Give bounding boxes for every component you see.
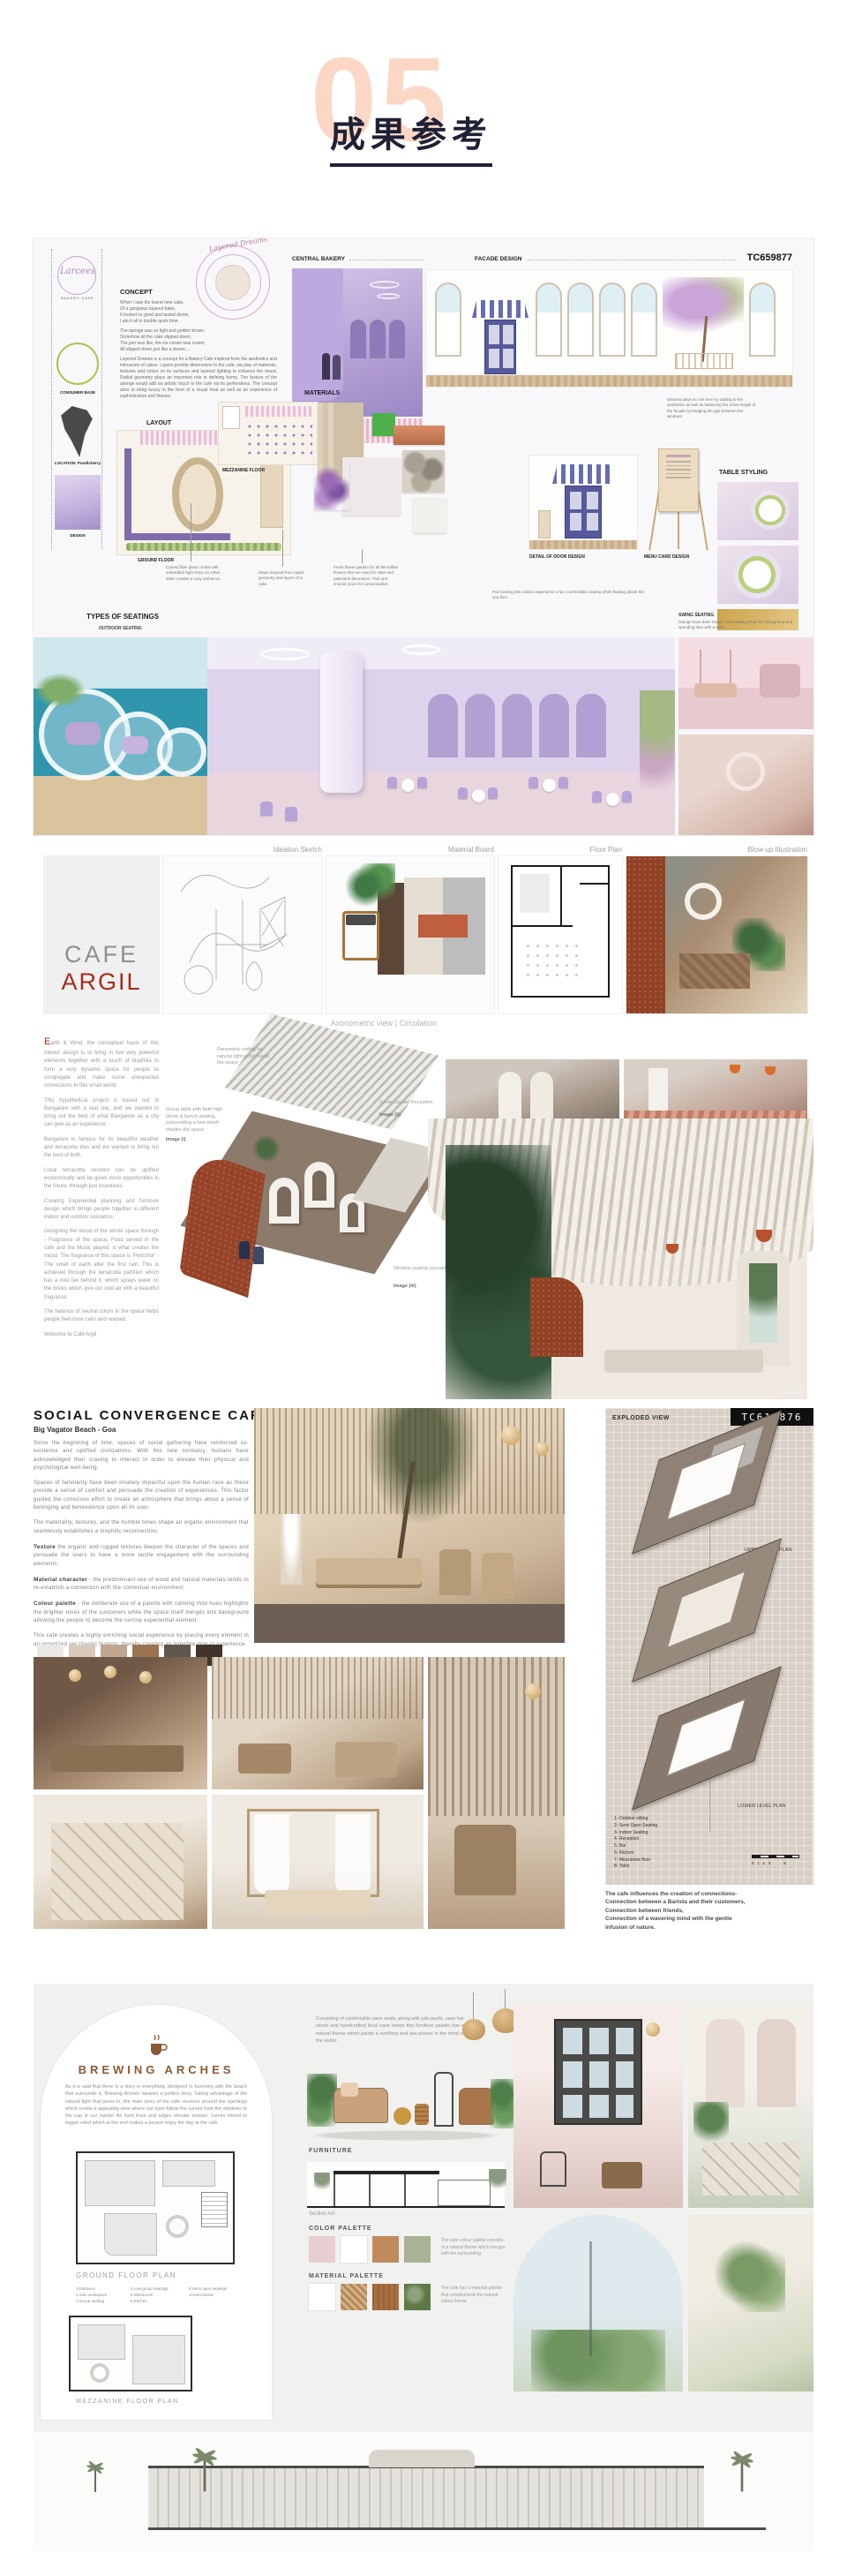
b3-paragraph: Since the beginning of time, spaces of s… (34, 1440, 249, 1473)
legend-item: 1.Entrance (76, 2286, 125, 2292)
argil-paragraph: Creating Experiential planning and furni… (44, 1198, 159, 1223)
legend-item: 7- Mezzanine floor (614, 1857, 657, 1864)
panel-label-floor-plan: Floor Plan (534, 846, 622, 854)
b3-photo-canopy (212, 1795, 423, 1929)
parametric-ceiling-annotation: Parametric ceiling for natural light to … (217, 1047, 274, 1067)
lamp-cord (505, 1989, 506, 2008)
types-of-seatings-heading: TYPES OF SEATINGS (86, 613, 159, 621)
material-lead: Material character (34, 1577, 87, 1583)
material-swatch (372, 2284, 399, 2310)
table-styling-heading: TABLE STYLING (719, 470, 768, 476)
fiber-glass-annotation: Carved fiber glass circles with embedded… (166, 565, 222, 582)
mezzanine-plan-drawing (69, 2316, 192, 2391)
color-swatch (372, 2236, 399, 2263)
plan-legend-col2: 4.Low group seatings 5.Washroom 6.Kitche… (131, 2286, 184, 2305)
color-palette-label: COLOR PALETTE (309, 2226, 372, 2232)
divider (528, 260, 736, 260)
blowup-illustration-panel (626, 856, 807, 1013)
elevation-watercolor (34, 2432, 813, 2551)
interior-seating-render (207, 637, 675, 835)
legend-item: 6.Kitchen (131, 2298, 184, 2304)
furniture-vignette (307, 2065, 505, 2141)
consumer-base-label: CONSUMER BASE (47, 390, 109, 395)
mezzanine-floor-plan (219, 403, 318, 464)
materials-heading: MATERIALS (304, 390, 340, 396)
steps-annotation: Steps inspired from radial geometry and … (259, 570, 311, 587)
swing-seating-render (678, 637, 813, 729)
menu-easel-illustration (648, 440, 709, 553)
brewing-intro: As it is said that there is a story in e… (65, 2083, 247, 2128)
panel-label-material-board: Material Board (406, 846, 494, 854)
legend-item: 6- Kitchen (614, 1850, 657, 1857)
argil-paragraph: The balance of neutral colors in the spa… (44, 1308, 159, 1325)
exploded-view-panel: EXPLODED VIEW TC619876 UPPER LEVEL PLAN … (605, 1408, 813, 1885)
b3-paragraph: The materiality, textures, and the humbl… (34, 1519, 249, 1536)
ground-floor-label: GROUND FLOOR (138, 558, 174, 563)
board-social-convergence-cafe: SOCIAL CONVERGENCE CAFE Big Vagator Beac… (34, 1408, 813, 1938)
b3-subtitle: Big Vagator Beach - Goa (34, 1426, 116, 1434)
location-label: LOCATION: Pondicherry (45, 461, 110, 465)
bakery-logo-name: Larcees (54, 267, 101, 276)
legend-item: 5- Bar (614, 1843, 657, 1850)
cafe-title-line1: CAFE (44, 941, 159, 968)
b3-title: SOCIAL CONVERGENCE CAFE (34, 1408, 271, 1423)
page-title: 成果参考 (330, 106, 492, 167)
color-palette-text: The cafe colour palette consists of a na… (441, 2238, 506, 2258)
central-bakery-heading: CENTRAL BAKERY (292, 256, 345, 262)
legend-item: 2- Semi Open Seating (614, 1823, 657, 1830)
legend-item: 3- Indoor Seating (614, 1830, 657, 1837)
board-cafe-argil: Ideation Sketch Material Board Floor Pla… (34, 846, 813, 1402)
brewing-arches-title: BREWING ARCHES (41, 2063, 272, 2076)
exploded-legend: 1- Outdoor sitting 2- Semi Open Seating … (614, 1816, 657, 1871)
b4-arch-window-scene (513, 2215, 683, 2391)
swing-annotation: Swings have been hung in two seating are… (678, 620, 809, 631)
group-table-annotation: Group table with both high stools & benc… (166, 1107, 229, 1134)
argil-paragraph: This hypothetical project is based out i… (44, 1097, 159, 1130)
argil-paragraph: Bangalore is famous for its beautiful we… (44, 1136, 159, 1161)
project-code: TC659877 (747, 252, 792, 263)
legend-item: 2.Solo workspace (76, 2292, 125, 2298)
legend-item: 4.Low group seatings (131, 2286, 184, 2292)
layout-heading: LAYOUT (146, 420, 171, 426)
b3-photo-interior (212, 1657, 423, 1789)
table-styling-photo (717, 482, 798, 540)
b3-photo-bar (34, 1657, 207, 1789)
b4-watercolor-interior (513, 2005, 683, 2208)
material-swatch (341, 2284, 367, 2310)
swing-seating-label: SWING SEATING (678, 613, 714, 618)
facade-design-heading: FACADE DESIGN (475, 256, 521, 262)
plan-legend-col1: 1.Entrance 2.Solo workspace 3.Group seat… (76, 2286, 125, 2305)
plan-legend-col3: 9.Semi open seatings 10.Mezzanine (189, 2286, 245, 2298)
b3-texture-paragraph: Texture the organic and rugged textures … (34, 1543, 249, 1569)
section-label: Section AA' (309, 2211, 336, 2217)
color-swatch (309, 2236, 335, 2263)
cane-lamp-icon (462, 2019, 485, 2040)
cafe-title-line2: ARGIL (44, 968, 159, 996)
argil-welcome-line: Welcome to Cafe Argil (44, 1331, 159, 1339)
texture-text: the organic and rugged textures deepen t… (34, 1545, 249, 1567)
concept-poem-2: The sponge was so light and golden brown… (120, 328, 261, 353)
furniture-paragraph: Consisting of comfortable cane seats, al… (316, 2015, 464, 2045)
location-map (59, 406, 96, 457)
exploded-view-label: EXPLODED VIEW (612, 1415, 670, 1421)
argil-paragraph: Designing the mood of the whole space th… (44, 1228, 159, 1302)
image-i-ref: Image (i) (166, 1137, 186, 1142)
coffee-cup-icon (144, 2033, 169, 2056)
argil-paragraph: Earth & Wind, the conceptual basis of th… (44, 1035, 159, 1091)
legend-item: 9.Semi open seatings (189, 2286, 245, 2292)
leader-line (191, 503, 191, 561)
legend-item: 10.Mezzanine (189, 2292, 245, 2298)
b3-hero-render (254, 1408, 565, 1643)
wisteria-tree (663, 277, 744, 376)
color-swatch (341, 2236, 367, 2263)
colour-lead: Colour palette (34, 1601, 76, 1607)
upper-level-slab (632, 1410, 782, 1555)
material-palette-text: The cafe has a material palette that com… (441, 2286, 506, 2306)
b3-photo-slat-wall (428, 1657, 565, 1929)
image-ii-ref: Image (ii) (379, 1112, 401, 1118)
render-image-iii: Image (iii) (446, 1145, 807, 1399)
bakery-logo-subtitle: BAKERY CAFE (52, 297, 103, 300)
b4-material-swatches (309, 2284, 436, 2315)
b4-watercolor-stairs (688, 2005, 813, 2208)
brand-column: Larcees BAKERY CAFE CONSUMER BASE LOCATI… (51, 249, 102, 549)
menu-card-label: MENU CARD DESIGN (644, 554, 689, 560)
material-palette-label: MATERIAL PALETTE (309, 2273, 384, 2279)
concept-poem-1: When I saw the brand new cake, Of a gorg… (120, 300, 261, 325)
mid-level-slab (632, 1538, 782, 1683)
consumer-base-diagram (56, 343, 99, 385)
scale-numbers: 0 1 2 3 5 (752, 1861, 805, 1865)
window-seating-annotation: Window seating concept (394, 1266, 446, 1273)
sketch-drawing (163, 856, 322, 1013)
b3-text-column: Since the beginning of time, spaces of s… (34, 1440, 249, 1656)
floor-plan-panel (498, 856, 622, 1013)
ideation-sketch-panel (163, 856, 322, 1013)
color-swatch (404, 2236, 431, 2263)
connections-text: The cafe influences the creation of conn… (605, 1890, 813, 1932)
wisteria-annotation: Wisteria plays its role here by adding t… (667, 397, 759, 419)
concept-paragraph: Layered Dreams is a concept for a Bakery… (120, 357, 277, 400)
flower-garden-annotation: Fresh flower garden for all the edible f… (334, 565, 399, 587)
image-label: Image (iii) (780, 1390, 803, 1396)
brewing-arches-panel: BREWING ARCHES As it is said that there … (41, 2005, 272, 2420)
panel-label-blowup: Blow-up Illustration (701, 846, 807, 854)
material-swatch (404, 2284, 431, 2310)
door-detail-label: DETAIL OF DOOR DESIGN (529, 554, 585, 560)
board-brewing-arches: BREWING ARCHES As it is said that there … (34, 1984, 813, 2551)
legend-item: 5.Washroom (131, 2292, 184, 2298)
legend-item: 4- Reception (614, 1836, 657, 1843)
door-detail-illustration (529, 456, 637, 549)
b4-color-swatches (309, 2236, 436, 2267)
legend-item: 1- Outdoor sitting (614, 1816, 657, 1823)
leader-line (362, 549, 363, 563)
material-swatch (309, 2284, 335, 2310)
lower-level-label: LOWER LEVEL PLAN (738, 1804, 786, 1809)
b3-colour-paragraph: Colour palette - the deliberate use of a… (34, 1600, 249, 1625)
cafe-argil-title-panel: CAFE ARGIL (44, 856, 159, 1013)
concept-heading: CONCEPT (120, 288, 153, 296)
ground-floor-plan-label: GROUND FLOOR PLAN (76, 2271, 176, 2279)
furniture-label: FURNITURE (309, 2148, 352, 2154)
section-drawing (307, 2162, 505, 2208)
interior-detail-photo (678, 734, 813, 835)
divider (349, 260, 423, 260)
b4-watercolor-greenery (688, 2215, 813, 2391)
table-styling-photo (717, 546, 798, 604)
facade-illustration (426, 270, 792, 387)
design-label: DESIGN (55, 533, 101, 538)
b3-material-paragraph: Material character - the predominant use… (34, 1576, 249, 1593)
panel-label-ideation-sketch: Ideation Sketch (234, 846, 322, 854)
outdoor-bubble-seating-render (34, 637, 207, 835)
mezzanine-floor-label: MEZZANINE FLOOR (222, 468, 265, 473)
lower-level-slab (632, 1666, 782, 1811)
argil-text-column: Earth & Wind, the conceptual basis of th… (44, 1035, 159, 1345)
texture-lead: Texture (34, 1544, 56, 1550)
serve-counter-annotation: Serve counter Reception (379, 1100, 438, 1107)
material-board-panel (326, 856, 494, 1013)
argil-paragraph: Local terracotta vendors can be uplifted… (44, 1167, 159, 1192)
b3-photo-stairs (34, 1795, 207, 1929)
legend-item: 8- Toilet (614, 1864, 657, 1871)
design-thumbnail (55, 475, 101, 530)
image-iii-ref: Image (iii) (394, 1284, 416, 1289)
outdoor-annotation: Pod seating lets visitors experience a f… (492, 590, 649, 601)
legend-item: 3.Group seating (76, 2298, 125, 2304)
mezzanine-plan-label: MEZZANINE FLOOR PLAN (76, 2399, 179, 2405)
b3-paragraph: Spaces of familiarity have been innately… (34, 1480, 249, 1512)
materials-collage (318, 399, 446, 547)
ground-floor-plan-drawing (76, 2151, 235, 2264)
leader-line (282, 530, 283, 567)
outdoor-seating-label: OUTDOOR SEATING (99, 626, 142, 631)
lamp-cord (473, 1992, 474, 2019)
scale-bar (752, 1855, 799, 1858)
board-layered-dreams-bakery: Larcees BAKERY CAFE CONSUMER BASE LOCATI… (34, 238, 813, 835)
